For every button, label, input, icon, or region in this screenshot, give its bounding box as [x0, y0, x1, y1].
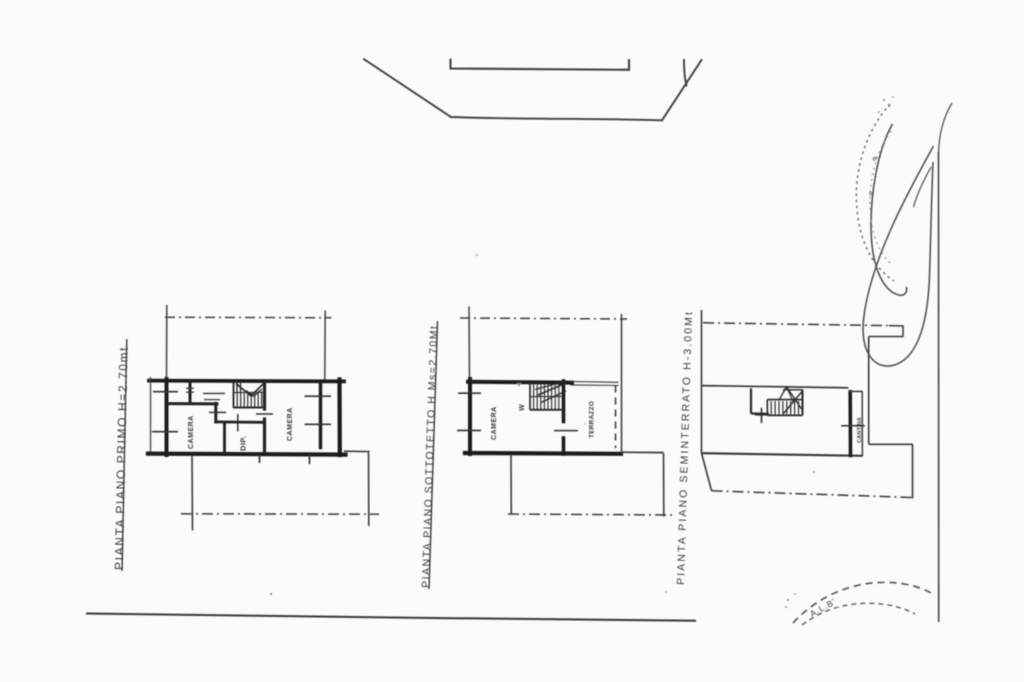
- svg-text:CAMERA: CAMERA: [491, 406, 498, 440]
- svg-text:CAMERA: CAMERA: [188, 415, 195, 449]
- svg-text:W: W: [519, 404, 526, 411]
- svg-text:CANT.NA: CANT.NA: [857, 417, 863, 443]
- svg-text:TERRAZZO: TERRAZZO: [589, 401, 596, 438]
- svg-text:DIP.: DIP.: [239, 436, 248, 451]
- svg-text:CAMERA: CAMERA: [287, 407, 294, 441]
